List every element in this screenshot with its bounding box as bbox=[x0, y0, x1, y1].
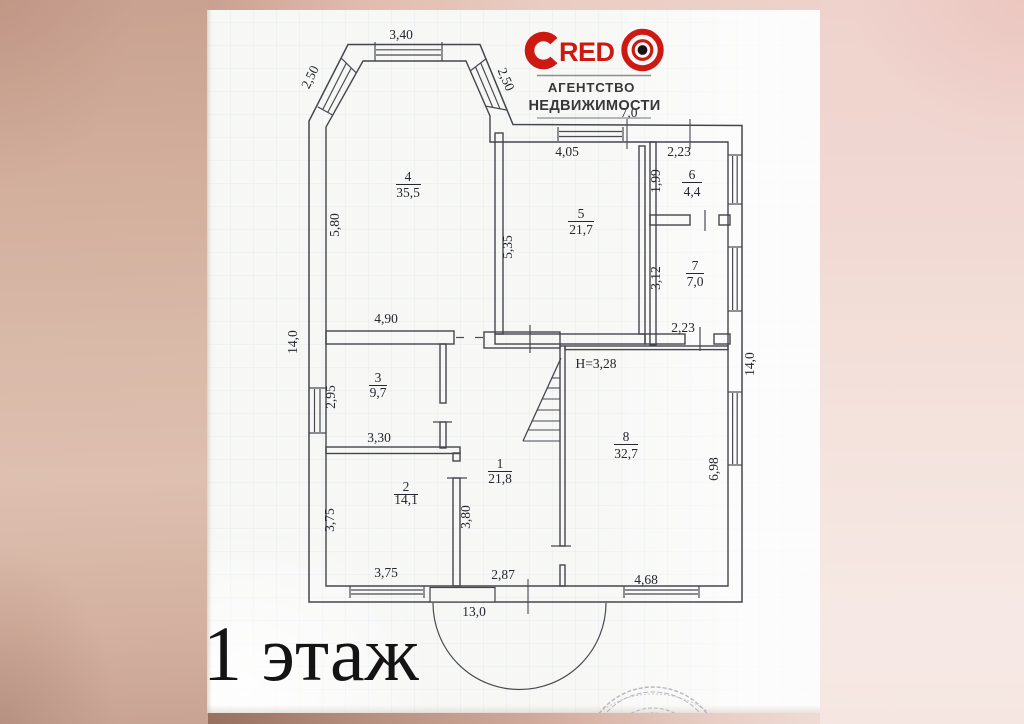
svg-text:6: 6 bbox=[689, 167, 696, 182]
svg-text:14,0: 14,0 bbox=[285, 330, 300, 354]
svg-text:3,12: 3,12 bbox=[648, 266, 663, 290]
svg-text:35,5: 35,5 bbox=[396, 185, 420, 200]
svg-text:3,40: 3,40 bbox=[389, 27, 413, 42]
svg-text:32,7: 32,7 bbox=[614, 446, 638, 461]
svg-text:5,80: 5,80 bbox=[327, 213, 342, 237]
svg-text:4,68: 4,68 bbox=[634, 572, 658, 587]
svg-text:3,80: 3,80 bbox=[458, 505, 473, 529]
svg-text:3,30: 3,30 bbox=[367, 430, 391, 445]
svg-text:2,23: 2,23 bbox=[671, 320, 695, 335]
svg-text:5: 5 bbox=[578, 206, 585, 221]
svg-text:3: 3 bbox=[375, 370, 382, 385]
svg-text:9,7: 9,7 bbox=[370, 385, 387, 400]
svg-text:3,75: 3,75 bbox=[374, 565, 398, 580]
svg-text:4,4: 4,4 bbox=[684, 184, 701, 199]
svg-text:6,98: 6,98 bbox=[706, 457, 721, 481]
svg-text:4,05: 4,05 bbox=[555, 144, 579, 159]
svg-text:14,1: 14,1 bbox=[394, 492, 418, 507]
svg-text:14,0: 14,0 bbox=[742, 352, 757, 376]
svg-text:7,0: 7,0 bbox=[687, 274, 704, 289]
svg-text:7: 7 bbox=[692, 258, 699, 273]
svg-text:АГЕНТСТВО: АГЕНТСТВО bbox=[548, 80, 635, 95]
svg-text:2,95: 2,95 bbox=[323, 385, 338, 409]
svg-text:13,0: 13,0 bbox=[462, 604, 486, 619]
svg-text:RED: RED bbox=[559, 37, 615, 67]
svg-text:21,7: 21,7 bbox=[569, 222, 593, 237]
svg-text:НЕДВИЖИМОСТИ: НЕДВИЖИМОСТИ bbox=[528, 98, 660, 114]
svg-text:1,99: 1,99 bbox=[648, 169, 663, 193]
svg-text:2,50: 2,50 bbox=[298, 63, 322, 91]
svg-text:8: 8 bbox=[623, 429, 630, 444]
svg-text:5,35: 5,35 bbox=[500, 235, 515, 259]
svg-text:3,75: 3,75 bbox=[322, 508, 337, 532]
svg-text:4: 4 bbox=[405, 169, 412, 184]
svg-text:2,87: 2,87 bbox=[491, 567, 515, 582]
svg-text:2,23: 2,23 bbox=[667, 144, 691, 159]
svg-text:4,90: 4,90 bbox=[374, 311, 398, 326]
svg-text:21,8: 21,8 bbox=[488, 471, 512, 486]
svg-text:H=3,28: H=3,28 bbox=[576, 356, 617, 371]
svg-text:1: 1 bbox=[497, 456, 504, 471]
